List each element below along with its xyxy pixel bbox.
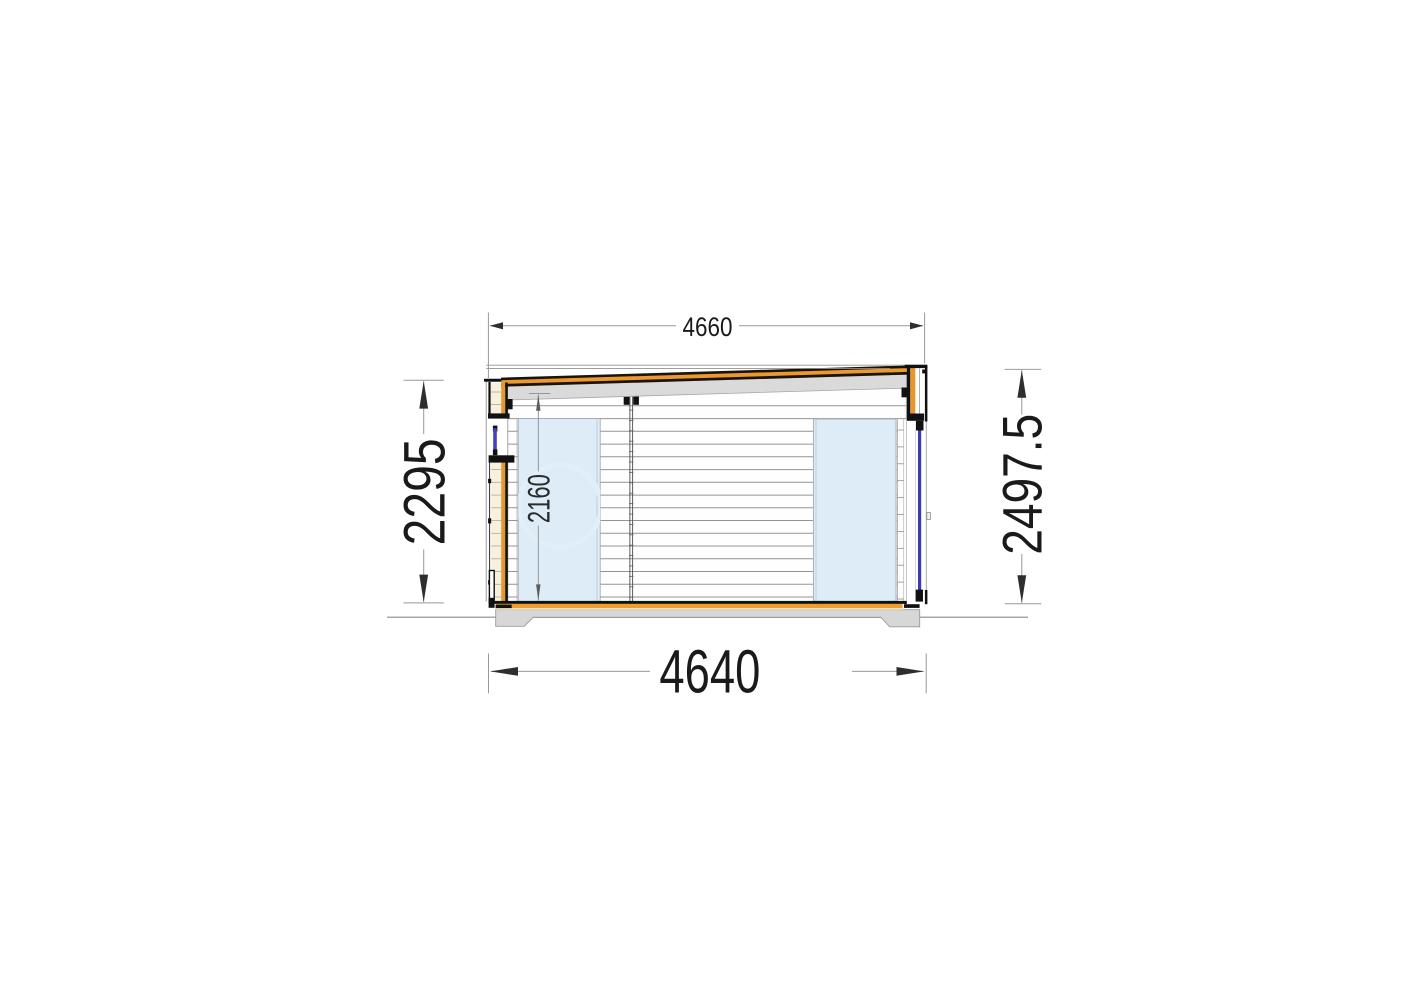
svg-text:2160: 2160 (520, 474, 556, 523)
svg-text:4640: 4640 (659, 637, 760, 705)
svg-text:2295: 2295 (393, 438, 458, 545)
svg-text:4660: 4660 (683, 312, 733, 342)
svg-text:2497.5: 2497.5 (991, 414, 1054, 555)
